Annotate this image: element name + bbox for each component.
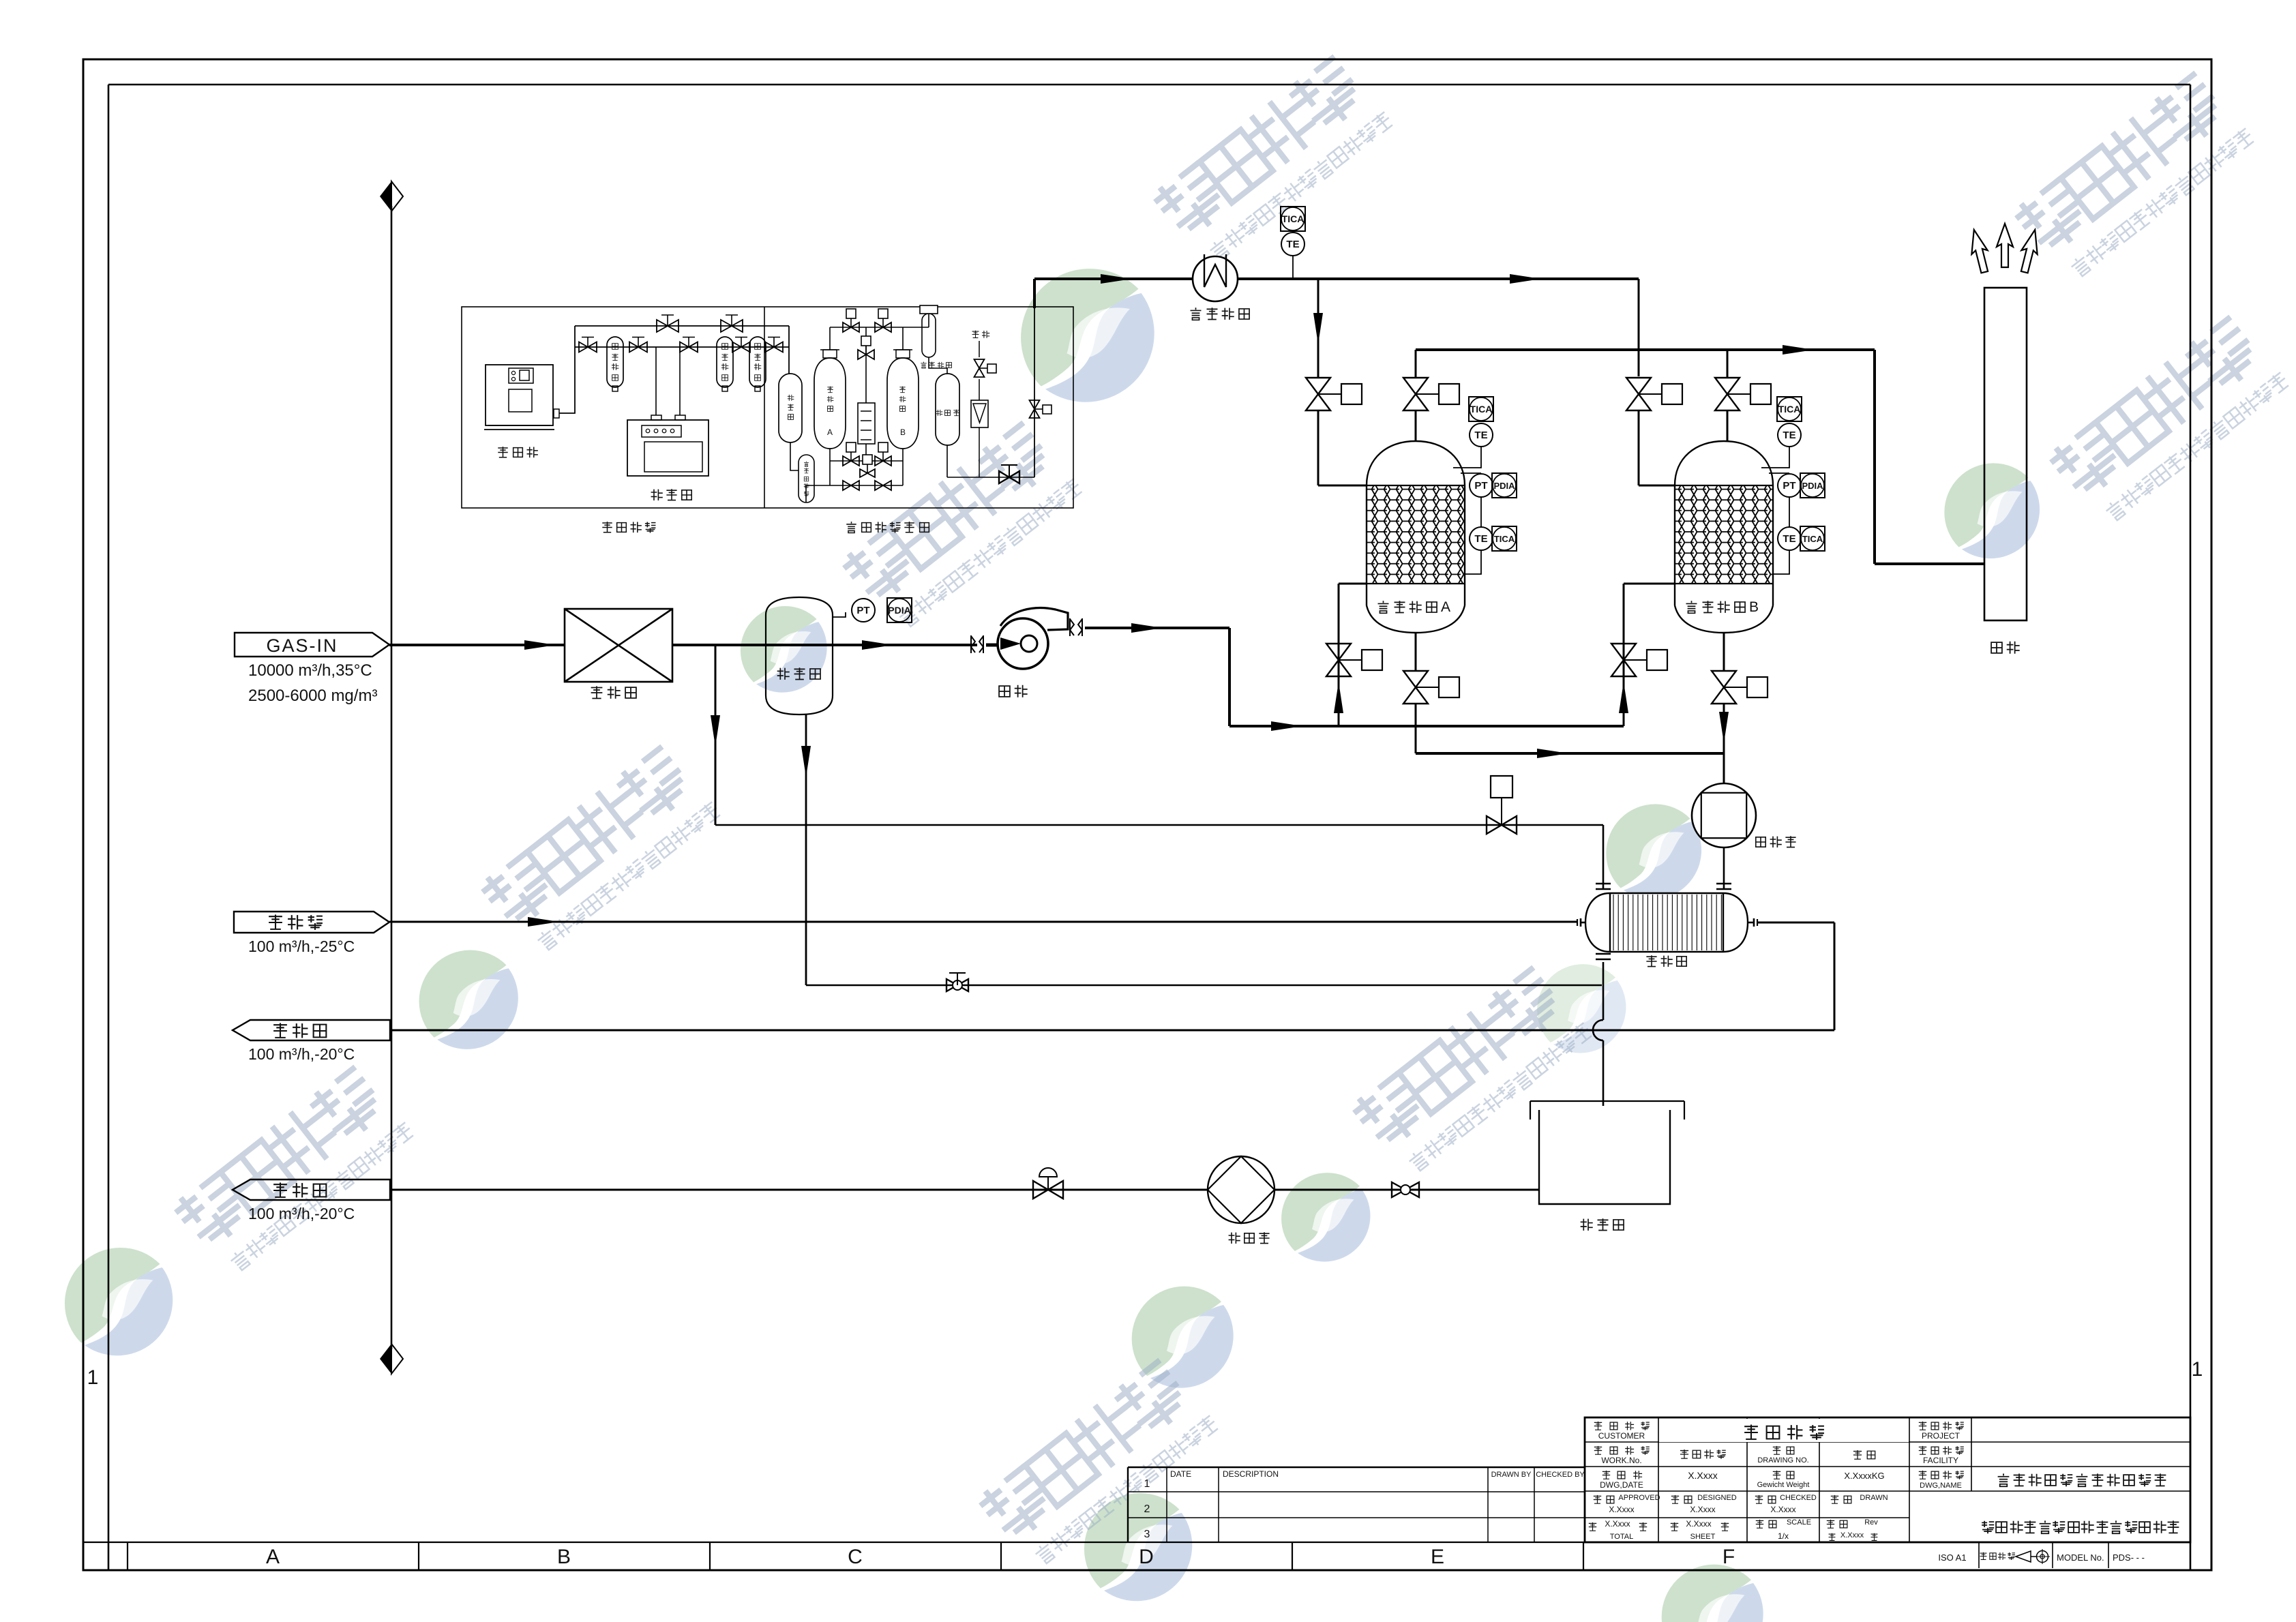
svg-text:100 m³/h,-25°C: 100 m³/h,-25°C — [248, 937, 355, 955]
svg-text:B: B — [900, 427, 906, 437]
svg-text:DRAWN BY: DRAWN BY — [1491, 1471, 1532, 1479]
svg-text:X.Xxxx: X.Xxxx — [1686, 1519, 1711, 1529]
svg-text:1: 1 — [2192, 1358, 2203, 1381]
svg-text:PDIA: PDIA — [888, 605, 910, 616]
svg-text:DRAWING NO.: DRAWING NO. — [1757, 1456, 1808, 1465]
svg-text:1/x: 1/x — [1778, 1531, 1789, 1541]
svg-text:Gewicht Weight: Gewicht Weight — [1757, 1481, 1810, 1489]
svg-text:PDIA: PDIA — [1802, 481, 1823, 491]
svg-text:PT: PT — [1783, 480, 1795, 492]
svg-text:1: 1 — [87, 1366, 99, 1389]
svg-text:2500-6000 mg/m³: 2500-6000 mg/m³ — [248, 687, 377, 705]
svg-text:PROJECT: PROJECT — [1922, 1431, 1960, 1441]
svg-text:TE: TE — [1474, 533, 1487, 545]
svg-text:DATE: DATE — [1170, 1469, 1191, 1479]
svg-text:FACILITY: FACILITY — [1923, 1456, 1958, 1465]
svg-text:100 m³/h,-20°C: 100 m³/h,-20°C — [248, 1205, 355, 1222]
svg-text:X.XxxxKG: X.XxxxKG — [1844, 1471, 1884, 1481]
svg-text:TICA: TICA — [1470, 404, 1493, 415]
svg-text:A: A — [266, 1546, 280, 1568]
svg-text:PDIA: PDIA — [1493, 481, 1515, 491]
svg-text:X.Xxxx: X.Xxxx — [1770, 1505, 1795, 1514]
svg-text:WORK.No.: WORK.No. — [1601, 1456, 1641, 1465]
svg-text:F: F — [1723, 1546, 1735, 1568]
svg-text:B: B — [1749, 599, 1759, 615]
svg-text:CHECKED BY: CHECKED BY — [1536, 1471, 1585, 1479]
svg-text:DESCRIPTION: DESCRIPTION — [1223, 1469, 1279, 1479]
svg-text:E: E — [1431, 1546, 1444, 1568]
svg-text:TE: TE — [1286, 239, 1299, 250]
svg-text:CUSTOMER: CUSTOMER — [1598, 1431, 1645, 1441]
svg-text:DRAWN: DRAWN — [1860, 1494, 1888, 1502]
svg-text:CHECKED: CHECKED — [1780, 1494, 1817, 1502]
svg-text:SCALE: SCALE — [1787, 1518, 1811, 1527]
svg-text:TE: TE — [1783, 430, 1795, 441]
svg-text:TE: TE — [1783, 533, 1795, 545]
svg-text:ISO A1: ISO A1 — [1938, 1552, 1966, 1563]
svg-text:X.Xxxx: X.Xxxx — [1690, 1505, 1715, 1514]
svg-text:TOTAL: TOTAL — [1610, 1533, 1633, 1541]
svg-text:A: A — [1441, 599, 1450, 615]
svg-text:TICA: TICA — [1778, 404, 1801, 415]
svg-text:A: A — [827, 427, 833, 437]
svg-text:DWG,NAME: DWG,NAME — [1920, 1482, 1962, 1490]
svg-text:TICA: TICA — [1494, 534, 1515, 544]
svg-text:TICA: TICA — [1802, 534, 1823, 544]
svg-text:10000 m³/h,35°C: 10000 m³/h,35°C — [248, 661, 372, 680]
svg-text:2: 2 — [1144, 1503, 1150, 1515]
svg-text:DWG,DATE: DWG,DATE — [1600, 1480, 1643, 1490]
svg-text:1: 1 — [1144, 1478, 1150, 1490]
svg-text:100 m³/h,-20°C: 100 m³/h,-20°C — [248, 1045, 355, 1063]
svg-text:Rev: Rev — [1864, 1518, 1878, 1527]
svg-text:MODEL No.: MODEL No. — [2057, 1552, 2104, 1563]
svg-text:X.Xxxx: X.Xxxx — [1605, 1519, 1630, 1529]
svg-text:X.Xxxx: X.Xxxx — [1840, 1531, 1864, 1540]
svg-text:PT: PT — [1474, 480, 1487, 492]
svg-text:GAS-IN: GAS-IN — [266, 635, 338, 656]
svg-text:X.Xxxx: X.Xxxx — [1688, 1470, 1718, 1481]
svg-text:C: C — [848, 1546, 863, 1568]
svg-text:TICA: TICA — [1282, 213, 1304, 224]
svg-text:SHEET: SHEET — [1690, 1533, 1716, 1541]
svg-text:PDS- - -: PDS- - - — [2113, 1552, 2145, 1563]
svg-text:D: D — [1139, 1546, 1154, 1568]
svg-text:B: B — [557, 1546, 571, 1568]
svg-text:TE: TE — [1474, 430, 1487, 441]
svg-text:PT: PT — [856, 605, 869, 616]
svg-text:APPROVED: APPROVED — [1618, 1494, 1660, 1502]
svg-text:DESIGNED: DESIGNED — [1697, 1494, 1737, 1502]
svg-text:X.Xxxx: X.Xxxx — [1609, 1505, 1634, 1514]
svg-text:3: 3 — [1144, 1529, 1150, 1540]
